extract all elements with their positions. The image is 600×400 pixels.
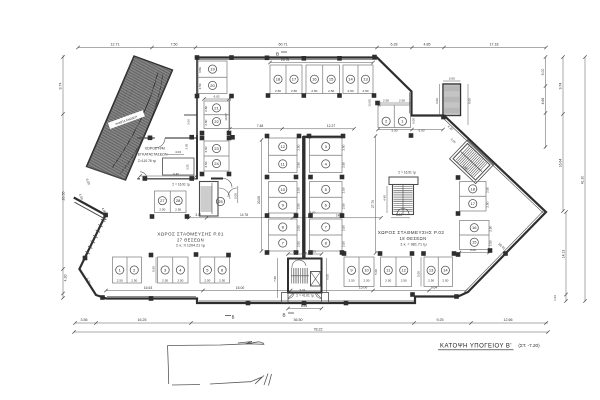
svg-text:7.50: 7.50	[171, 43, 178, 47]
svg-text:ΚΑΤΟΨΗ ΥΠΟΓΕΙΟΥ Β': ΚΑΤΟΨΗ ΥΠΟΓΕΙΟΥ Β'	[440, 343, 512, 349]
svg-text:Σ κ. π 1204.21 τμ: Σ κ. π 1204.21 τμ	[176, 243, 205, 247]
svg-text:27: 27	[160, 198, 165, 203]
svg-text:2.50: 2.50	[362, 89, 368, 93]
svg-text:3.56: 3.56	[198, 67, 202, 73]
svg-text:2.50: 2.50	[159, 208, 165, 212]
svg-text:2.50: 2.50	[489, 225, 493, 231]
svg-text:6.00: 6.00	[418, 129, 424, 133]
svg-text:17: 17	[292, 77, 297, 82]
svg-text:2.50: 2.50	[297, 241, 301, 247]
svg-text:16: 16	[472, 225, 477, 230]
svg-text:19: 19	[210, 67, 215, 72]
svg-text:3.00: 3.00	[449, 77, 455, 81]
svg-text:13: 13	[429, 268, 434, 273]
svg-text:2.50: 2.50	[204, 146, 208, 152]
svg-text:2.50: 2.50	[219, 279, 225, 283]
svg-text:3.56: 3.56	[187, 119, 191, 125]
svg-text:12.27: 12.27	[327, 124, 336, 128]
svg-text:ΧΩΡΟΣ ΣΤΑΘΜΕΥΣΗΣ Ρ.02: ΧΩΡΟΣ ΣΤΑΘΜΕΥΣΗΣ Ρ.02	[378, 230, 445, 235]
svg-text:16.64: 16.64	[559, 159, 563, 168]
svg-text:4.85: 4.85	[424, 43, 431, 47]
svg-text:12: 12	[281, 144, 286, 149]
svg-text:26.55: 26.55	[62, 192, 66, 201]
svg-text:17: 17	[471, 201, 476, 206]
svg-text:18 ΘΕΣΕΩΝ: 18 ΘΕΣΕΩΝ	[399, 236, 426, 241]
svg-text:2.50: 2.50	[489, 240, 493, 246]
svg-text:16: 16	[312, 77, 317, 82]
svg-text:Σ = 16.91 τμ: Σ = 16.91 τμ	[172, 183, 190, 187]
svg-text:B: B	[232, 315, 235, 320]
svg-text:7.80: 7.80	[273, 276, 277, 282]
svg-text:B: B	[282, 313, 285, 318]
svg-text:18: 18	[276, 77, 281, 82]
svg-text:2.50: 2.50	[204, 106, 208, 112]
svg-text:15: 15	[472, 240, 477, 245]
svg-text:2.50: 2.50	[204, 119, 208, 125]
svg-text:28: 28	[176, 198, 181, 203]
svg-text:7.48: 7.48	[257, 124, 264, 128]
svg-text:9.25: 9.25	[437, 318, 444, 322]
svg-text:2.50: 2.50	[383, 99, 389, 103]
svg-text:12.71: 12.71	[111, 43, 120, 47]
svg-text:14.13: 14.13	[562, 250, 566, 259]
svg-text:2.50: 2.50	[297, 162, 301, 168]
svg-text:9.74: 9.74	[58, 83, 62, 90]
svg-text:20.06: 20.06	[257, 196, 261, 204]
svg-text:5.50: 5.50	[391, 129, 397, 133]
svg-text:2.50: 2.50	[175, 208, 181, 212]
svg-text:24: 24	[214, 161, 219, 166]
svg-text:3.56: 3.56	[81, 318, 88, 322]
svg-text:5.00: 5.00	[374, 269, 378, 275]
svg-text:2.50: 2.50	[486, 187, 490, 193]
svg-text:2.50: 2.50	[297, 144, 301, 150]
svg-text:Σ = 16.91 τμ: Σ = 16.91 τμ	[398, 171, 416, 175]
svg-text:6.05: 6.05	[326, 274, 330, 280]
svg-text:2.50: 2.50	[311, 89, 317, 93]
svg-text:1.03: 1.03	[553, 295, 557, 301]
svg-text:25: 25	[218, 199, 223, 204]
svg-text:2.50: 2.50	[198, 83, 202, 89]
svg-text:2.50: 2.50	[363, 278, 369, 282]
svg-text:2.50: 2.50	[401, 278, 407, 282]
svg-text:2.50: 2.50	[328, 89, 334, 93]
svg-text:3.55: 3.55	[185, 164, 189, 170]
svg-text:2.50: 2.50	[486, 201, 490, 207]
svg-text:Σ = 41.61 τμ: Σ = 41.61 τμ	[296, 294, 314, 298]
svg-text:6.00: 6.00	[412, 118, 416, 124]
svg-text:10: 10	[281, 187, 286, 192]
svg-text:78.22: 78.22	[314, 327, 323, 331]
svg-text:2.50: 2.50	[428, 278, 434, 282]
svg-text:2.50: 2.50	[342, 144, 346, 150]
svg-text:2.50: 2.50	[204, 279, 210, 283]
svg-text:6.00: 6.00	[470, 248, 476, 252]
svg-text:2.50: 2.50	[291, 89, 297, 93]
svg-text:5.00: 5.00	[417, 271, 421, 277]
svg-text:2.50: 2.50	[348, 278, 354, 282]
svg-text:5.00: 5.00	[234, 193, 238, 199]
svg-text:ΧΩΡΟΣ Η/Μ: ΧΩΡΟΣ Η/Μ	[145, 146, 165, 150]
svg-text:ΕΓΚΑΤΑΣΤΑΣΕΩΝ: ΕΓΚΑΤΑΣΤΑΣΕΩΝ	[138, 152, 168, 156]
svg-text:8.00: 8.00	[468, 98, 472, 104]
svg-text:B: B	[276, 52, 279, 57]
svg-text:2.85: 2.85	[184, 143, 188, 149]
svg-text:2.50: 2.50	[204, 161, 208, 167]
svg-text:16.25: 16.25	[138, 318, 147, 322]
svg-text:21: 21	[214, 105, 219, 110]
svg-text:5.01: 5.01	[300, 288, 306, 292]
svg-text:2.50: 2.50	[162, 279, 168, 283]
svg-text:2.50: 2.50	[342, 162, 346, 168]
svg-text:2.50: 2.50	[399, 99, 405, 103]
svg-text:2.50: 2.50	[342, 225, 346, 231]
svg-text:4.20: 4.20	[64, 275, 68, 282]
svg-text:20: 20	[210, 83, 215, 88]
svg-text:4.66: 4.66	[541, 98, 545, 105]
svg-text:2.50: 2.50	[297, 187, 301, 193]
svg-text:2.50: 2.50	[131, 279, 137, 283]
svg-text:18: 18	[471, 186, 476, 191]
svg-text:17.18: 17.18	[490, 43, 499, 47]
svg-text:Σ κ. = 981.71 τμ: Σ κ. = 981.71 τμ	[400, 243, 426, 247]
svg-text:2.50: 2.50	[342, 241, 346, 247]
svg-text:2.50: 2.50	[297, 225, 301, 231]
svg-text:13.05: 13.05	[368, 99, 372, 107]
svg-text:4.40: 4.40	[383, 195, 387, 201]
svg-text:2.50: 2.50	[297, 203, 301, 209]
svg-text:2.50: 2.50	[347, 89, 353, 93]
svg-text:14: 14	[348, 77, 353, 82]
svg-text:2.50: 2.50	[342, 203, 346, 209]
svg-text:13: 13	[363, 77, 368, 82]
svg-text:2.50: 2.50	[385, 278, 391, 282]
svg-text:6.03: 6.03	[214, 95, 220, 99]
svg-text:Σ=110.76 τμ: Σ=110.76 τμ	[138, 159, 156, 163]
svg-text:2.50: 2.50	[275, 89, 281, 93]
svg-text:4.03: 4.03	[175, 150, 181, 154]
svg-text:41.30: 41.30	[581, 176, 585, 185]
svg-text:12: 12	[402, 268, 407, 273]
svg-text:19.87: 19.87	[224, 113, 228, 121]
svg-text:(ΣΤ. -7.20): (ΣΤ. -7.20)	[518, 343, 540, 348]
svg-text:15.00: 15.00	[236, 286, 245, 290]
svg-text:5.00: 5.00	[541, 69, 545, 76]
svg-text:6.00: 6.00	[435, 98, 439, 104]
svg-text:27.79: 27.79	[371, 200, 375, 208]
svg-text:6.28: 6.28	[391, 43, 398, 47]
svg-text:2.50: 2.50	[342, 187, 346, 193]
svg-text:16.63: 16.63	[144, 286, 153, 290]
svg-text:2.50: 2.50	[117, 279, 123, 283]
svg-text:ΧΩΡΟΣ ΣΤΑΘΜΕΥΣΗΣ Ρ.01: ΧΩΡΟΣ ΣΤΑΘΜΕΥΣΗΣ Ρ.01	[157, 232, 224, 237]
svg-text:22: 22	[214, 119, 219, 124]
svg-text:60.71: 60.71	[279, 43, 288, 47]
svg-text:23: 23	[214, 146, 219, 151]
svg-text:3.01: 3.01	[195, 213, 201, 217]
svg-text:2.50: 2.50	[177, 279, 183, 283]
svg-text:27 ΘΕΣΕΩΝ: 27 ΘΕΣΕΩΝ	[177, 237, 204, 242]
svg-text:36.50: 36.50	[294, 318, 303, 322]
svg-text:5.00: 5.00	[152, 266, 156, 272]
svg-text:2.50: 2.50	[442, 278, 448, 282]
svg-text:12.66: 12.66	[504, 318, 513, 322]
svg-text:10: 10	[364, 268, 369, 273]
svg-text:15: 15	[329, 77, 334, 82]
svg-text:14.78: 14.78	[240, 213, 248, 217]
svg-text:9.74: 9.74	[559, 83, 563, 90]
svg-text:14: 14	[443, 268, 448, 273]
